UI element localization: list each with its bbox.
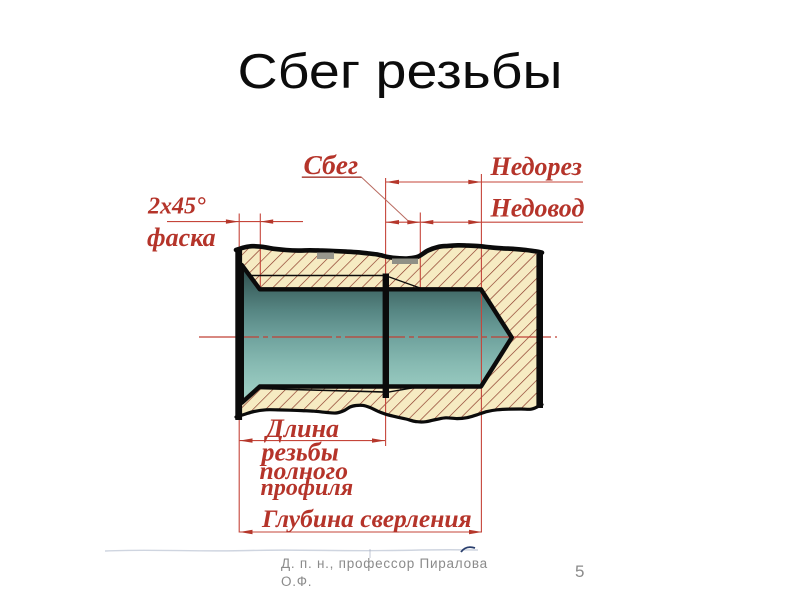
svg-text:Недовод: Недовод [490,194,585,223]
svg-text:профиля: профиля [261,475,354,501]
svg-text:Недорез: Недорез [490,152,582,181]
svg-text:фаска: фаска [147,223,216,252]
svg-text:Глубина сверления: Глубина сверления [261,504,472,533]
svg-text:2х45°: 2х45° [147,194,206,220]
svg-text:Сбег: Сбег [304,149,359,180]
